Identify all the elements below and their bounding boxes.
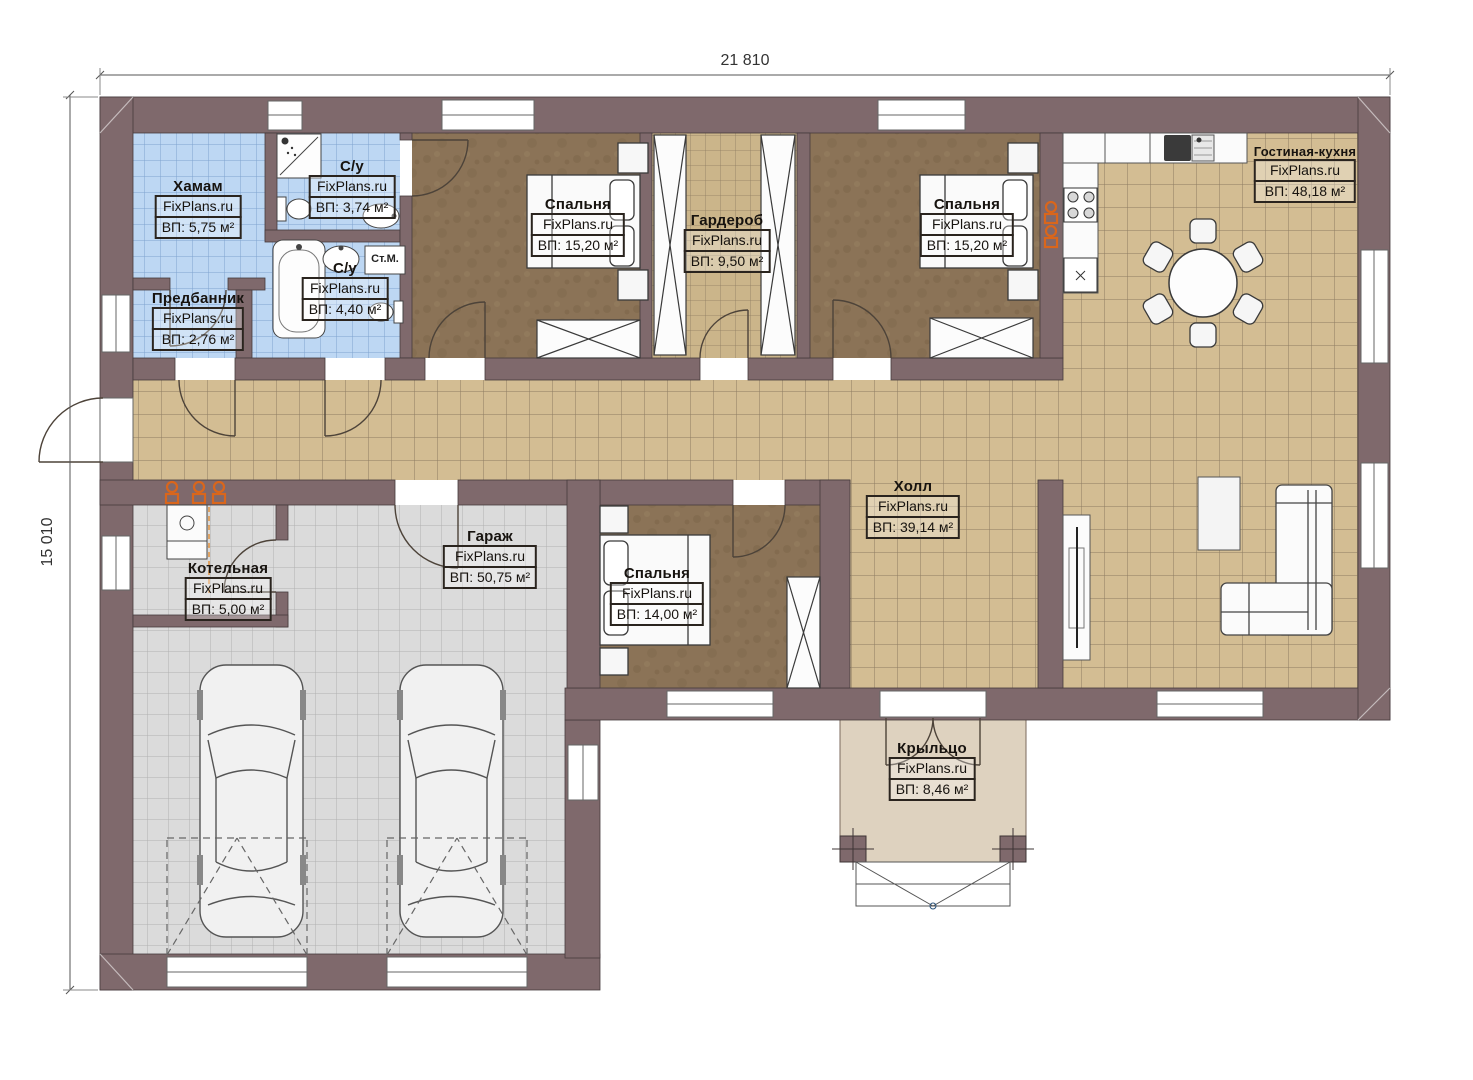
window (442, 100, 534, 130)
wardrobe-icon (787, 577, 820, 688)
toilet-icon (277, 197, 311, 221)
watermark-text: FixPlans.ru (920, 213, 1014, 236)
stove-icon (1064, 188, 1097, 222)
watermark-text: FixPlans.ru (443, 545, 537, 568)
room-name: С/у (309, 158, 396, 175)
entrance-opening (880, 691, 986, 717)
room-area: ВП: 5,00 м² (185, 598, 272, 621)
room-area: ВП: 14,00 м² (610, 603, 704, 626)
car-icon (397, 665, 506, 937)
watermark-text: FixPlans.ru (152, 307, 244, 330)
room-name: Гараж (443, 528, 537, 545)
window (878, 100, 965, 130)
room-area: ВП: 15,20 м² (531, 234, 625, 257)
room-name: Котельная (185, 560, 272, 577)
room-name: Предбанник (152, 290, 244, 307)
appliance-icon (1064, 258, 1097, 292)
window (568, 745, 598, 800)
wall-right (1358, 97, 1390, 720)
room-label-garderob: Гардероб FixPlans.ru ВП: 9,50 м² (684, 212, 771, 273)
watermark-text: FixPlans.ru (889, 757, 976, 780)
room-name: Гардероб (684, 212, 771, 229)
room-area: ВП: 2,76 м² (152, 328, 244, 351)
watermark-text: FixPlans.ru (1254, 159, 1356, 182)
boiler-icon (167, 505, 207, 559)
room-name: Крыльцо (889, 740, 976, 757)
watermark-text: FixPlans.ru (866, 495, 960, 518)
wardrobe-icon (654, 135, 686, 355)
room-label-porch: Крыльцо FixPlans.ru ВП: 8,46 м² (889, 740, 976, 801)
window (1361, 250, 1388, 363)
room-name: Спальня (920, 196, 1014, 213)
car-icon (197, 665, 306, 937)
room-label-living-kitchen: Гостиная-кухня FixPlans.ru ВП: 48,18 м² (1254, 144, 1356, 203)
window (667, 691, 773, 717)
watermark-text: FixPlans.ru (684, 229, 771, 252)
watermark-text: FixPlans.ru (610, 582, 704, 605)
room-label-bedroom-bottom: Спальня FixPlans.ru ВП: 14,00 м² (610, 565, 704, 626)
porch-steps (856, 862, 1010, 909)
room-label-predbannik: Предбанник FixPlans.ru ВП: 2,76 м² (152, 290, 244, 351)
room-name: Спальня (531, 196, 625, 213)
window (102, 536, 130, 590)
room-label-hall: Холл FixPlans.ru ВП: 39,14 м² (866, 478, 960, 539)
garage-door-opening (167, 957, 307, 987)
room-area: ВП: 39,14 м² (866, 516, 960, 539)
room-label-su-top: С/у FixPlans.ru ВП: 3,74 м² (309, 158, 396, 219)
tv-unit-icon (1063, 515, 1090, 660)
room-area: ВП: 9,50 м² (684, 250, 771, 273)
room-label-kotelnaya: Котельная FixPlans.ru ВП: 5,00 м² (185, 560, 272, 621)
wardrobe-icon (537, 320, 640, 358)
watermark-text: FixPlans.ru (185, 577, 272, 600)
room-name: Холл (866, 478, 960, 495)
door-arc (39, 398, 103, 462)
window (102, 295, 130, 352)
watermark-text: FixPlans.ru (302, 277, 389, 300)
room-label-su-bottom: С/у FixPlans.ru ВП: 4,40 м² (302, 260, 389, 321)
watermark-text: FixPlans.ru (155, 195, 242, 218)
dimension-width-label: 21 810 (721, 52, 770, 70)
garage-door-opening (387, 957, 527, 987)
floor-plan: 21 810 15 010 Хамам FixPlans.ru ВП: 5,75… (0, 0, 1473, 1080)
room-area: ВП: 8,46 м² (889, 778, 976, 801)
wardrobe-icon (930, 318, 1033, 358)
floorplan-drawing (0, 0, 1473, 1080)
window (1361, 463, 1388, 568)
vent-shaft (268, 101, 302, 130)
dimension-height-label: 15 010 (39, 518, 57, 567)
room-area: ВП: 50,75 м² (443, 566, 537, 589)
watermark-text: FixPlans.ru (531, 213, 625, 236)
coffee-table-icon (1198, 477, 1240, 550)
room-area: ВП: 5,75 м² (155, 216, 242, 239)
room-label-hamam: Хамам FixPlans.ru ВП: 5,75 м² (155, 178, 242, 239)
watermark-text: FixPlans.ru (309, 175, 396, 198)
floor-corridor (133, 380, 1063, 480)
window (1157, 691, 1263, 717)
room-name: Гостиная-кухня (1254, 144, 1356, 159)
room-label-garage: Гараж FixPlans.ru ВП: 50,75 м² (443, 528, 537, 589)
room-area: ВП: 15,20 м² (920, 234, 1014, 257)
side-door-opening (100, 398, 133, 462)
room-area: ВП: 48,18 м² (1254, 180, 1356, 203)
room-area: ВП: 4,40 м² (302, 298, 389, 321)
room-label-bedroom-left: Спальня FixPlans.ru ВП: 15,20 м² (531, 196, 625, 257)
room-name: Хамам (155, 178, 242, 195)
room-area: ВП: 3,74 м² (309, 196, 396, 219)
room-name: Спальня (610, 565, 704, 582)
kitchen-sink-icon (1164, 135, 1214, 161)
room-label-bedroom-right: Спальня FixPlans.ru ВП: 15,20 м² (920, 196, 1014, 257)
washing-machine-label: Ст.М. (371, 253, 399, 265)
